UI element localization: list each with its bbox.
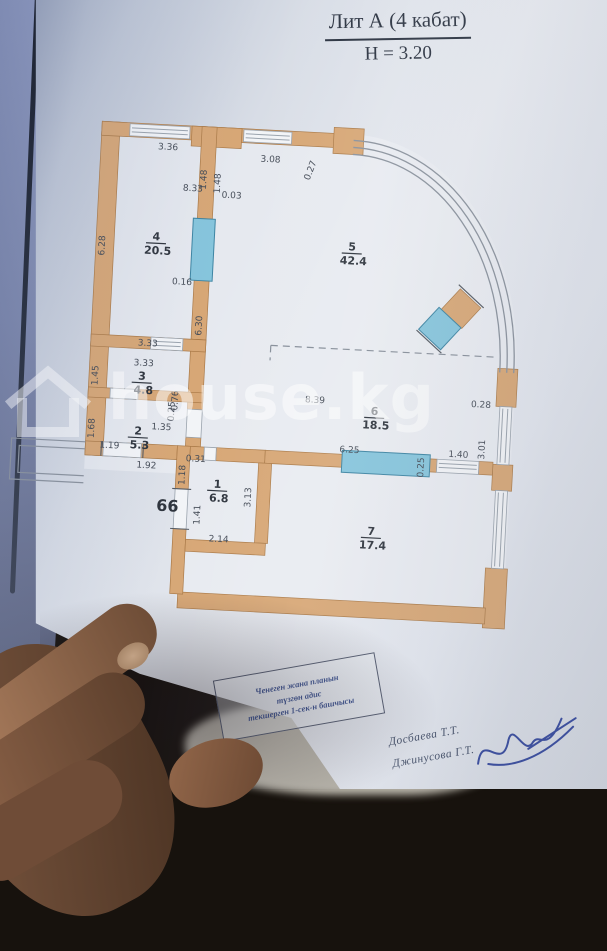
room-number: 2 [134,424,142,437]
room-area: 17.4 [359,538,387,552]
title-height: Н = 3.20 [308,41,488,66]
dimension-label: 8.39 [305,395,326,406]
dimension-label: 0.31 [185,454,206,465]
room-number: 3 [138,370,146,383]
dimension-label: 1.92 [136,461,157,472]
room-area: 5.3 [129,438,149,452]
dimension-label: 1.19 [99,441,120,452]
dimension-label: 3.13 [243,487,254,508]
dimension-label: 6.25 [339,445,360,456]
dimension-label: 6.30 [194,315,205,336]
dimension-label: 0.25 [416,457,427,478]
dimension-label: 3.33 [137,338,158,349]
dimension-label: 1.35 [151,422,172,433]
room-number: 4 [152,230,161,243]
dimension-label: 1.68 [87,418,98,439]
drawing-title: Лит А (4 кабат) Н = 3.20 [308,6,489,66]
apartment-number: 66 [156,496,179,516]
dimension-label: 1.45 [90,365,101,386]
dimension-label: 0.03 [221,191,242,202]
dimension-label: 1.18 [177,464,188,485]
dimension-label: 3.01 [477,439,488,460]
room-number: 6 [370,405,379,418]
room-area: 4.8 [133,383,153,397]
dimension-label: 6.28 [97,235,108,256]
dimension-label: 0.25 [167,401,178,422]
room-number: 5 [348,240,356,253]
dimension-label: 3.36 [158,142,179,153]
dimension-label: 0.16 [172,277,193,288]
room-number: 7 [367,525,375,538]
dimension-label: 2.14 [208,534,229,545]
room-area: 6.8 [209,491,229,505]
room-area: 20.5 [144,244,172,258]
dimension-label: 1.41 [192,505,203,526]
room-area: 42.4 [339,254,367,268]
dimension-label: 1.40 [448,450,469,461]
room4-5-door [190,218,215,281]
dimension-label: 3.08 [260,155,281,166]
balcony-outline [9,438,85,483]
dimension-label: 3.33 [133,358,154,369]
title-liter: Лит А (4 кабат) [325,7,471,42]
room-number: 1 [213,478,221,491]
room-area: 18.5 [362,418,390,432]
dimension-label: 8.33 [183,184,204,195]
dimension-label: 0.28 [471,400,492,411]
